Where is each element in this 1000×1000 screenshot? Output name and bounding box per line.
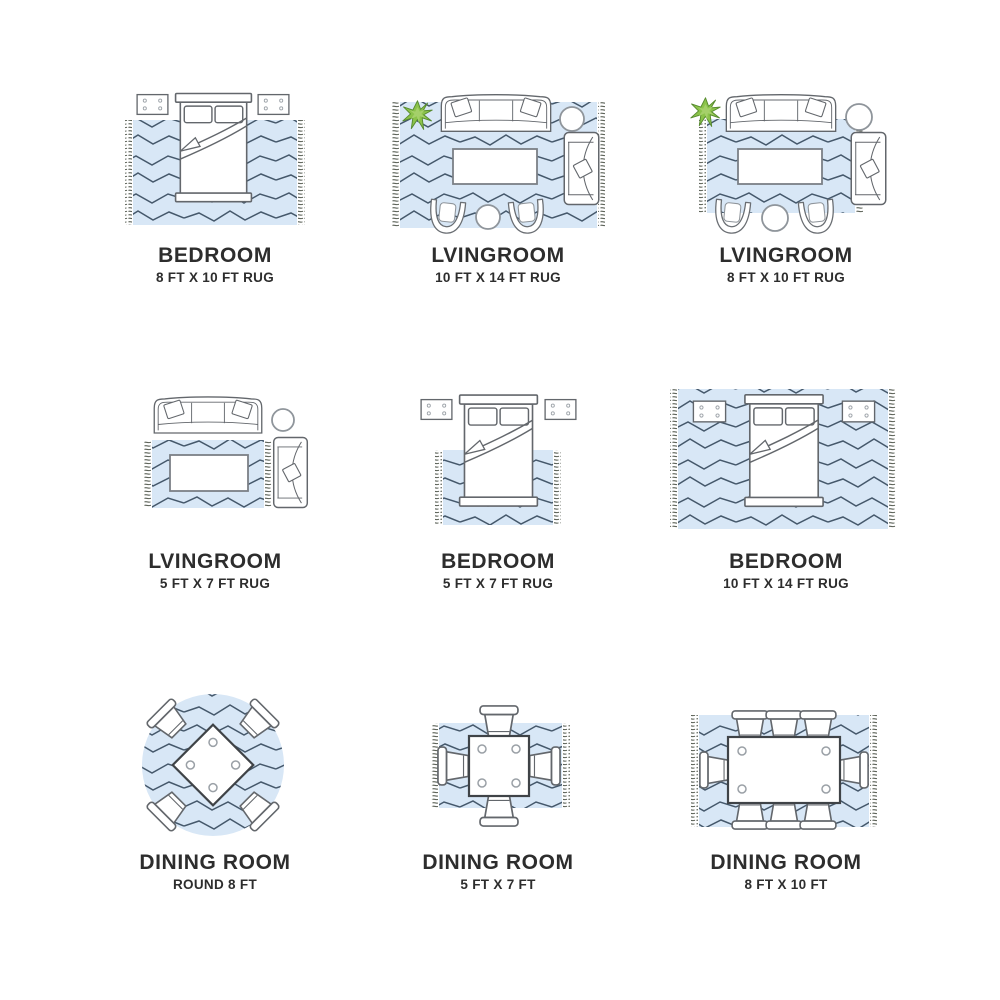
bed-icon xyxy=(460,395,538,506)
dining-table-icon xyxy=(469,736,529,796)
side-table-icon xyxy=(846,104,872,130)
rug-fringe xyxy=(889,389,896,529)
rug-fringe xyxy=(144,440,151,508)
ottoman-icon xyxy=(762,205,788,231)
panel-bedroom-8x10 xyxy=(125,93,305,225)
rug-fringe xyxy=(554,450,561,525)
rug-fringe xyxy=(125,120,132,225)
room-name: DINING ROOM xyxy=(671,851,901,874)
room-name: DINING ROOM xyxy=(383,851,613,874)
rug-size: 8 FT X 10 FT xyxy=(671,877,901,892)
rug-size: 8 FT X 10 FT RUG xyxy=(671,270,901,285)
rug-fringe xyxy=(298,120,305,225)
armchair-icon xyxy=(564,133,599,205)
nightstand-icon xyxy=(545,400,576,420)
rug-size: 8 FT X 10 FT RUG xyxy=(100,270,330,285)
panel-bedroom-10x14 xyxy=(670,389,896,529)
label-bedroom-10x14: BEDROOM 10 FT X 14 FT RUG xyxy=(671,550,901,591)
coffee-table-icon xyxy=(453,149,537,184)
panel-dining-8x10 xyxy=(691,711,877,829)
nightstand-icon xyxy=(137,95,168,115)
room-name: DINING ROOM xyxy=(100,851,330,874)
label-dining-8x10: DINING ROOM 8 FT X 10 FT xyxy=(671,851,901,892)
panel-livingroom-5x7 xyxy=(144,397,307,508)
dining-table-icon xyxy=(728,737,840,803)
label-bedroom-5x7: BEDROOM 5 FT X 7 FT RUG xyxy=(383,550,613,591)
barrel-chair-icon xyxy=(508,199,546,235)
room-name: LVINGROOM xyxy=(383,244,613,267)
panel-bedroom-5x7 xyxy=(421,395,576,525)
rug-size: 5 FT X 7 FT RUG xyxy=(383,576,613,591)
rug-size-guide: BEDROOM 8 FT X 10 FT RUG LVINGROOM 10 FT… xyxy=(0,0,1000,1000)
side-table-icon xyxy=(560,107,584,131)
room-name: BEDROOM xyxy=(671,550,901,573)
armchair-icon xyxy=(274,437,308,507)
room-name: BEDROOM xyxy=(383,550,613,573)
barrel-chair-icon xyxy=(713,199,751,235)
rug-fringe xyxy=(691,715,698,827)
armchair-icon xyxy=(851,133,886,205)
rug-size: ROUND 8 FT xyxy=(100,877,330,892)
label-livingroom-10x14: LVINGROOM 10 FT X 14 FT RUG xyxy=(383,244,613,285)
label-livingroom-8x10: LVINGROOM 8 FT X 10 FT RUG xyxy=(671,244,901,285)
panel-dining-round-8 xyxy=(142,694,284,836)
coffee-table-icon xyxy=(738,149,822,184)
nightstand-icon xyxy=(258,95,289,115)
room-name: BEDROOM xyxy=(100,244,330,267)
label-dining-5x7: DINING ROOM 5 FT X 7 FT xyxy=(383,851,613,892)
rug-fringe xyxy=(670,389,677,529)
bed-icon xyxy=(745,395,823,507)
room-name: LVINGROOM xyxy=(100,550,330,573)
rug-fringe xyxy=(392,102,399,228)
rug-fringe xyxy=(265,440,272,508)
panel-livingroom-10x14 xyxy=(392,95,605,235)
panel-livingroom-8x10 xyxy=(691,95,886,235)
rug-fringe xyxy=(563,723,570,808)
rug-size: 5 FT X 7 FT RUG xyxy=(100,576,330,591)
barrel-chair-icon xyxy=(428,199,466,235)
label-bedroom-8x10: BEDROOM 8 FT X 10 FT RUG xyxy=(100,244,330,285)
panel-dining-5x7 xyxy=(431,706,570,826)
sofa-icon xyxy=(726,95,835,132)
room-name: LVINGROOM xyxy=(671,244,901,267)
barrel-chair-icon xyxy=(798,199,836,235)
nightstand-icon xyxy=(421,400,452,420)
nightstand-icon xyxy=(693,401,725,422)
side-table-icon xyxy=(272,409,294,431)
nightstand-icon xyxy=(842,401,874,422)
rug-size: 10 FT X 14 FT RUG xyxy=(671,576,901,591)
label-livingroom-5x7: LVINGROOM 5 FT X 7 FT RUG xyxy=(100,550,330,591)
label-dining-round-8: DINING ROOM ROUND 8 FT xyxy=(100,851,330,892)
rug-guide-canvas xyxy=(0,0,1000,1000)
rug-fringe xyxy=(435,450,442,525)
rug-size: 5 FT X 7 FT xyxy=(383,877,613,892)
rug-fringe xyxy=(870,715,877,827)
sofa-icon xyxy=(441,95,550,132)
rug-fringe xyxy=(431,723,438,808)
ottoman-icon xyxy=(476,205,500,229)
rug-size: 10 FT X 14 FT RUG xyxy=(383,270,613,285)
sofa-icon xyxy=(154,397,262,433)
rug-fringe xyxy=(699,119,706,213)
bed-icon xyxy=(176,93,252,201)
coffee-table-icon xyxy=(170,455,248,491)
